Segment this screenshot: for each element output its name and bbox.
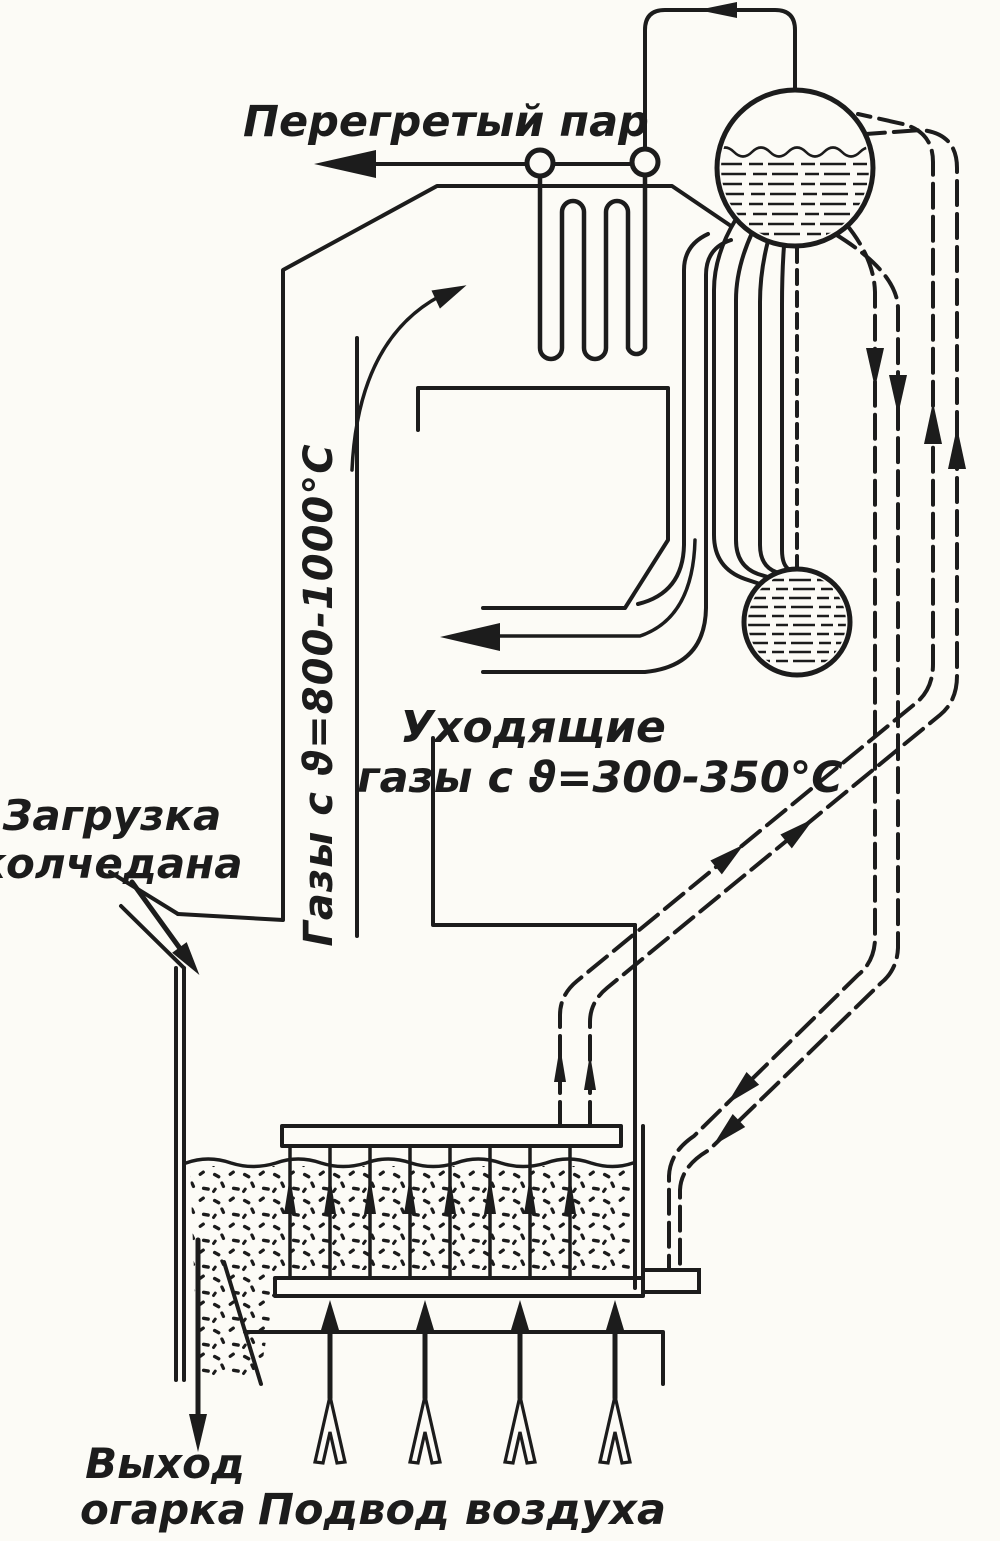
label-exhaust-gases-2: газы с ϑ=300-350°С — [357, 753, 843, 803]
up-flow-arrow-icon — [554, 1046, 566, 1082]
label-pyrite-loading-2: колчедана — [0, 839, 243, 888]
lower-drum-shell — [744, 569, 850, 675]
steam-drum — [716, 90, 878, 246]
bundle-tube — [736, 233, 771, 578]
bundle-tube — [760, 241, 781, 574]
exhaust-duct-inner-wall — [638, 234, 708, 604]
downcomer-pipe — [669, 224, 875, 1270]
up-flow-arrow-icon — [924, 402, 942, 444]
air-arrow-head-icon — [321, 1300, 339, 1330]
air-arrow — [410, 1300, 440, 1463]
air-arrow-tail-icon — [505, 1396, 535, 1463]
up-flow-arrow-icon — [584, 1054, 596, 1090]
superheater-inlet-header — [632, 149, 658, 175]
air-arrow-tail-icon — [600, 1396, 630, 1463]
diagram-canvas: Перегретый пар Газы с ϑ=800-1000°С Уходя… — [0, 0, 1000, 1541]
exhaust-gas-arrow-icon — [440, 623, 500, 651]
superheater-coil — [540, 176, 645, 359]
loop-flow-arrow-icon — [698, 2, 737, 18]
air-arrow-head-icon — [606, 1300, 624, 1330]
exhaust-flow-shaft — [490, 540, 695, 636]
bottom-header-extension — [643, 1270, 699, 1292]
furnace-boiler-schematic: Перегретый пар Газы с ϑ=800-1000°С Уходя… — [0, 0, 1000, 1541]
label-cinder-output-2: огарка — [80, 1485, 246, 1534]
air-arrow-head-icon — [416, 1300, 434, 1330]
air-arrow-tail-icon — [315, 1396, 345, 1463]
label-pyrite-loading-1: Загрузка — [2, 791, 222, 840]
air-box-floor — [245, 1332, 663, 1384]
label-air-supply: Подвод воздуха — [258, 1485, 666, 1535]
boiler-tube-bundle — [714, 219, 797, 584]
steam-drum-shell — [717, 90, 873, 246]
label-hot-gases: Газы с ϑ=800-1000°С — [296, 443, 342, 946]
cinder-hopper-wall — [176, 968, 184, 1380]
boiler-inner-box — [418, 388, 668, 608]
superheated-steam-arrow-icon — [314, 150, 376, 178]
up-flow-arrow-icon — [948, 427, 966, 469]
air-arrow-tail-icon — [410, 1396, 440, 1463]
superheater-outlet-header — [527, 150, 553, 176]
furnace-left-wall-and-roof — [178, 186, 731, 920]
air-arrow-head-icon — [511, 1300, 529, 1330]
label-exhaust-gases-1: Уходящие — [400, 702, 666, 753]
label-superheated-steam: Перегретый пар — [243, 97, 649, 147]
grate-bar — [275, 1278, 643, 1296]
air-arrow — [315, 1300, 345, 1463]
top-header-bar — [282, 1126, 621, 1146]
gas-rise-arrow-shaft — [352, 296, 440, 470]
down-flow-arrow-icon — [866, 348, 884, 388]
air-arrow — [505, 1300, 535, 1463]
gas-rise-arrow-icon — [431, 276, 470, 308]
air-arrow — [600, 1300, 630, 1463]
down-flow-arrow-icon — [889, 375, 907, 415]
air-supply-arrows — [315, 1300, 630, 1463]
lower-drum — [744, 569, 852, 675]
label-cinder-output-1: Выход — [85, 1439, 245, 1488]
bundle-tube — [782, 246, 790, 570]
